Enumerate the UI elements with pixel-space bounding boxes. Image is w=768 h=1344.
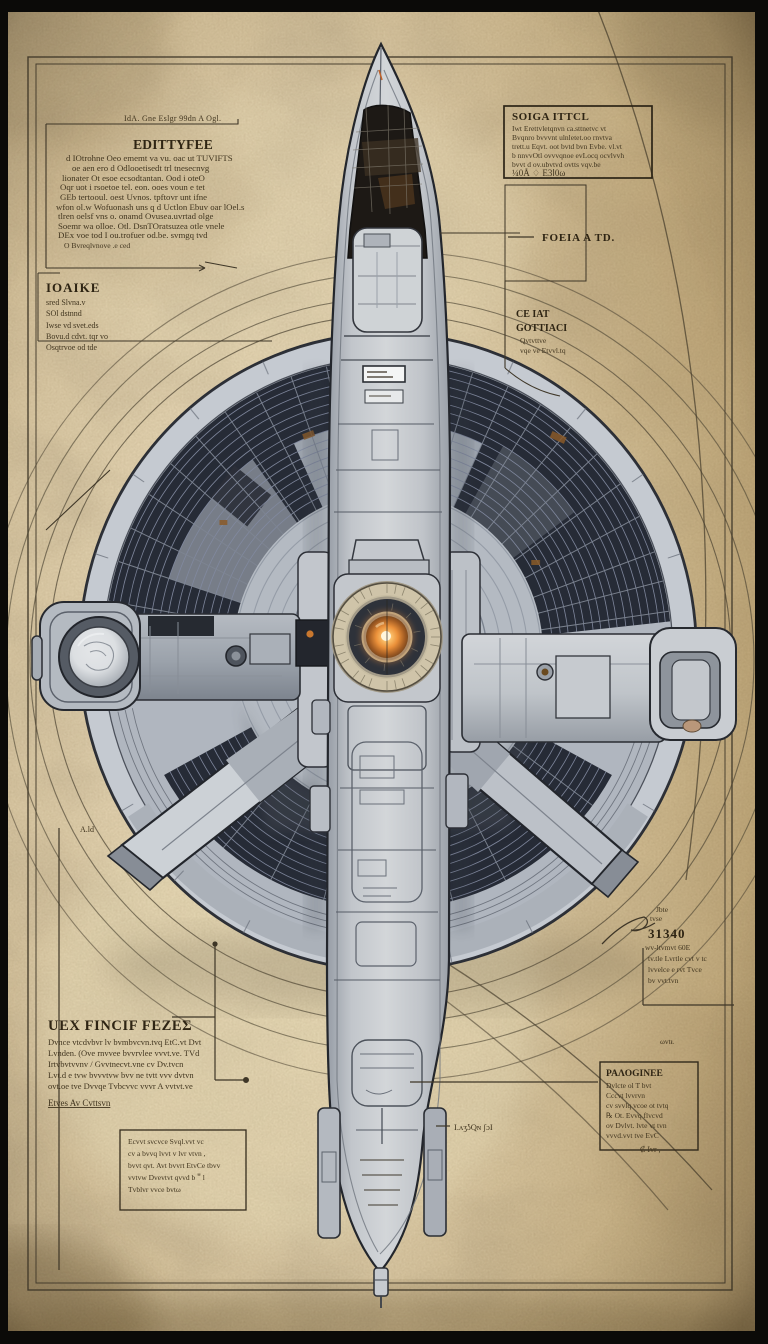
svg-text:Bovu.d cdvt. tqr vo: Bovu.d cdvt. tqr vo (46, 332, 108, 341)
svg-text:℞ Ot. Evvq flvcvd: ℞ Ot. Evvq flvcvd (606, 1111, 663, 1120)
svg-text:ovt.oe tve Dvvqe Tvbcvvc vvvr: ovt.oe tve Dvvqe Tvbcvvc vvvr A vvtvt.ve (48, 1081, 193, 1091)
svg-text:tv.tle Lvrtle cvt v tc: tv.tle Lvrtle cvt v tc (648, 954, 708, 963)
svg-text:Irtvbvtvvnv / Gvvtnecvt.vne cv: Irtvbvtvvnv / Gvvtnecvt.vne cv Dv.tvcn (48, 1059, 184, 1069)
svg-text:b nnvvOtl ovvvqnoe evLocq ocvl: b nnvvOtl ovvvqnoe evLocq ocvlvvh (512, 151, 624, 160)
svg-text:Cccvt lvvrvn: Cccvt lvvrvn (606, 1091, 645, 1100)
svg-text:vvvd.vvt tve EvC: vvvd.vvt tve EvC (606, 1131, 659, 1140)
svg-text:IOAIKE: IOAIKE (46, 280, 100, 295)
svg-text:sred Slvna.v: sred Slvna.v (46, 298, 86, 307)
svg-text:SOl dstnnd: SOl dstnnd (46, 309, 82, 318)
svg-text:DEx voe tod I ou.trofuer od.be: DEx voe tod I ou.trofuer od.be. svmgq tv… (58, 230, 208, 240)
svg-text:Qvtvttve: Qvtvttve (520, 336, 547, 345)
svg-text:oe aen ero d Odlooetisedt trl: oe aen ero d Odlooetisedt trl tnesecnvg (72, 163, 210, 173)
svg-text:vvtvw Dvevtvt qvvd b＂l: vvtvw Dvevtvt qvvd b＂l (128, 1173, 205, 1182)
svg-text:Bvqnro bvvvnt ulnletet.oo rnvt: Bvqnro bvvvnt ulnletet.oo rnvtva (512, 133, 613, 142)
svg-text:tvse: tvse (650, 914, 663, 923)
svg-text:vqe ve Etvvl.tq: vqe ve Etvvl.tq (520, 346, 566, 355)
svg-text:tlren oelsf vns o. onamd Ovuse: tlren oelsf vns o. onamd Ovusea.uvrtad o… (58, 211, 213, 221)
svg-text:bv vvt.tvn: bv vvt.tvn (648, 976, 679, 985)
svg-text:31340: 31340 (648, 926, 686, 941)
svg-text:Dvlcte ol T bvt: Dvlcte ol T bvt (606, 1081, 652, 1090)
svg-text:wv-ltvmvt 60E: wv-ltvmvt 60E (645, 943, 691, 952)
svg-text:trett.u Eqvt. oot bvtd bvn Evb: trett.u Eqvt. oot bvtd bvn Evbe. vl.vt (512, 142, 623, 151)
svg-text:Dvnce vtcdvbvr lv bvmbvcvn.tvq: Dvnce vtcdvbvr lv bvmbvcvn.tvq EtC.vt Dv… (48, 1037, 202, 1047)
svg-text:¼0Å ♢ Ε3ⅼ0ω: ¼0Å ♢ Ε3ⅼ0ω (512, 168, 565, 178)
svg-text:d IOtrohne Oeo ememt va vu. oa: d IOtrohne Oeo ememt va vu. oac ut TUVIF… (66, 153, 233, 163)
svg-text:UΕX FIΝCIF FEΖEΣ: UΕX FIΝCIF FEΖEΣ (48, 1018, 192, 1034)
svg-text:Oqr uot i rsoetoe tel. eon. oo: Oqr uot i rsoetoe tel. eon. ooes voun e … (60, 182, 205, 192)
svg-text:I.ʌʒʖQɴ ʃɔI: I.ʌʒʖQɴ ʃɔI (454, 1122, 493, 1132)
svg-text:lvvelce e rvt Tvce: lvvelce e rvt Tvce (648, 965, 702, 974)
svg-text:ωvtᴌ: ωvtᴌ (660, 1037, 674, 1046)
svg-text:Iwse vd svet.eds: Iwse vd svet.eds (46, 321, 99, 330)
svg-text:EDITTYFEE: EDITTYFEE (133, 137, 213, 152)
svg-text:GOTTIACI: GOTTIACI (516, 323, 567, 334)
svg-text:O Bvreqlvnove .e ced: O Bvreqlvnove .e ced (64, 241, 130, 250)
svg-text:cv svvlq vcoe ot tvtq: cv svvlq vcoe ot tvtq (606, 1101, 669, 1110)
svg-text:SOIGA ITTCL: SOIGA ITTCL (512, 111, 589, 123)
svg-text:₡ Ivr ,: ₡ Ivr , (640, 1145, 661, 1154)
svg-text:A.ld: A.ld (80, 825, 94, 834)
svg-text:ov Dvlvt. lvte vt tvn: ov Dvlvt. lvte vt tvn (606, 1121, 667, 1130)
svg-text:FOEIA A TD.: FOEIA A TD. (542, 232, 615, 244)
svg-text:Jbte: Jbte (656, 905, 669, 914)
svg-text:PAΛOGIΝEE: PAΛOGIΝEE (606, 1069, 663, 1079)
svg-text:cv a bvvq lvvt v lvr vtvn ,: cv a bvvq lvvt v lvr vtvn , (128, 1149, 206, 1158)
svg-text:Lvnden. (Ove rnvvee bvvrvlee v: Lvnden. (Ove rnvvee bvvrvlee vvvt.ve. TV… (48, 1048, 200, 1058)
svg-text:CE IAT: CE IAT (516, 309, 550, 320)
svg-text:GEb tertooul. oest Uvnos. tpft: GEb tertooul. oest Uvnos. tpftovr unt if… (60, 192, 207, 202)
svg-text:IdA. Gne Eslgr 99dn A Ogl.: IdA. Gne Eslgr 99dn A Ogl. (124, 114, 221, 123)
svg-text:Ecvvt svcvce Svql.vvt vc: Ecvvt svcvce Svql.vvt vc (128, 1137, 204, 1146)
svg-text:Tvblvr vvce bvtω: Tvblvr vvce bvtω (128, 1185, 181, 1194)
svg-text:Iwt Erettvletqnvn ca.sttnetvc: Iwt Erettvletqnvn ca.sttnetvc vt (512, 124, 607, 133)
svg-text:Osqtrvoe od tde: Osqtrvoe od tde (46, 343, 98, 352)
svg-text:bvvt qvt. Avt bvvrt EtvCe tbvv: bvvt qvt. Avt bvvrt EtvCe tbvv (128, 1161, 221, 1170)
svg-text:Lvt.d e tvw bvvvtvw bvv ne tvt: Lvt.d e tvw bvvvtvw bvv ne tvtt vvv dvtv… (48, 1070, 194, 1080)
svg-text:Etves Av Cvttsvn: Etves Av Cvttsvn (48, 1098, 111, 1108)
